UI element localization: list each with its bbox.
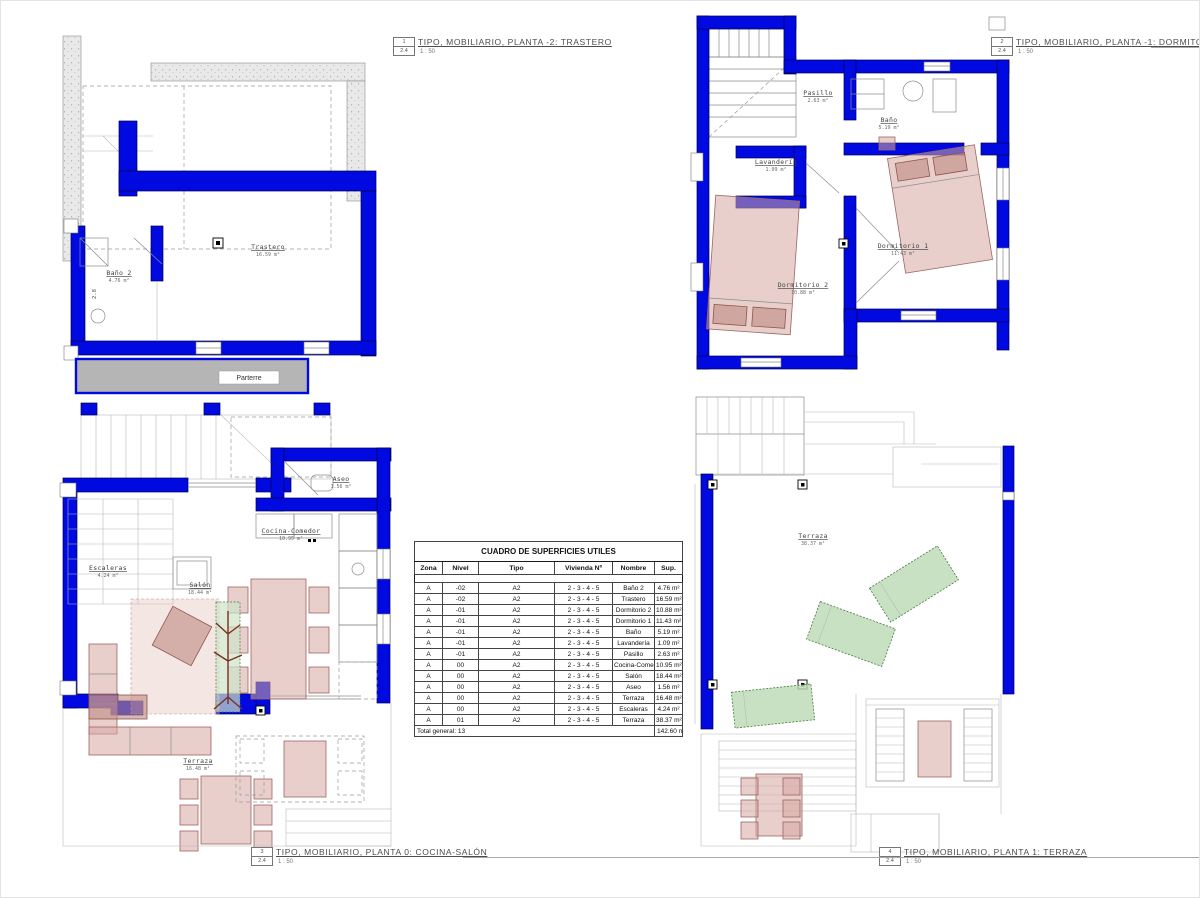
lounge-set [866,699,999,787]
glass-door [188,483,256,487]
table-cell: -01 [443,616,479,627]
table-cell: A2 [479,704,555,715]
table-cell: A [415,671,443,682]
marker-symbol [256,706,265,715]
table-row: A-02A22 - 3 - 4 - 5Trastero16.59 m² [415,594,683,605]
title-block-3: 3 2.4 TIPO, MOBILIARIO, PLANTA 0: COCINA… [251,847,487,866]
plant [214,602,242,712]
concrete-walls [63,36,365,261]
column-header: Tipo [479,562,555,575]
table-cell: Cocina-Comedor [613,660,655,671]
blue-walls [71,121,376,356]
table-cell: A [415,605,443,616]
table-cell: 00 [443,671,479,682]
table-cell: 11.43 m² [655,616,683,627]
table-cell: 2 - 3 - 4 - 5 [555,638,613,649]
sheet-number: 2.4 [252,857,272,865]
table-cell: 10.88 m² [655,605,683,616]
table-cell: A [415,715,443,726]
room-area: 1.09 m² [765,167,786,173]
table-cell: 2 - 3 - 4 - 5 [555,649,613,660]
room-area: 16.59 m² [256,252,280,258]
table-cell: A [415,616,443,627]
table-cell: 2 - 3 - 4 - 5 [555,660,613,671]
sun-loungers [731,546,958,728]
table-cell: A2 [479,605,555,616]
room-area: 18.44 m² [188,590,212,596]
table-cell: A [415,649,443,660]
room-label: Salón [189,581,210,589]
dimension-label: 2.8 [92,289,98,299]
column-header: Sup. [655,562,683,575]
table-cell: Trastero [613,594,655,605]
table-cell: A [415,660,443,671]
table-row: A-02A22 - 3 - 4 - 5Baño 24.76 m² [415,583,683,594]
table-cell: A2 [479,715,555,726]
table-cell: 38.37 m² [655,715,683,726]
table-cell: A2 [479,693,555,704]
sheet-number: 2.4 [394,47,414,55]
room-label: Baño [881,116,898,124]
table-cell: A [415,682,443,693]
drawing-number: 2 [992,38,1012,47]
table-row: A00A22 - 3 - 4 - 5Cocina-Comedor10.95 m² [415,660,683,671]
table-cell: -01 [443,649,479,660]
table-row: A-01A22 - 3 - 4 - 5Lavandería1.09 m² [415,638,683,649]
upper-room [893,447,1001,487]
table-cell: 2.63 m² [655,649,683,660]
table-cell: 16.48 m² [655,693,683,704]
table-body: A-02A22 - 3 - 4 - 5Baño 24.76 m²A-02A22 … [415,583,683,726]
table-cell: 2 - 3 - 4 - 5 [555,671,613,682]
table-cell: Escaleras [613,704,655,715]
table-cell: A2 [479,682,555,693]
room-area: 4.76 m² [108,278,129,284]
column-header: Zona [415,562,443,575]
marker-symbol [839,239,848,248]
table-cell: 2 - 3 - 4 - 5 [555,594,613,605]
dining-table [228,579,329,699]
sink-icon [352,563,364,575]
title-block-1: 1 2.4 TIPO, MOBILIARIO, PLANTA -2: TRAST… [393,37,612,56]
stairs [696,397,936,475]
table-row: A-01A22 - 3 - 4 - 5Dormitorio 210.88 m² [415,605,683,616]
drawing-scale: 1 : 50 [904,859,1087,865]
drawing-title: TIPO, MOBILIARIO, PLANTA 1: TERRAZA [904,847,1087,857]
room-label: Escaleras [89,564,127,572]
door-swing [806,163,839,193]
separator-line [1151,47,1200,48]
table-row: A-01A22 - 3 - 4 - 5Dormitorio 111.43 m² [415,616,683,627]
table-cell: -02 [443,583,479,594]
floor-plan-planta-minus-1: Pasillo 2.63 m² Baño 5.19 m² Lavandería … [681,13,1021,403]
table-title: CUADRO DE SUPERFICIES UTILES [415,542,683,562]
table-cell: 2 - 3 - 4 - 5 [555,715,613,726]
table-cell: Dormitorio 2 [613,605,655,616]
room-label: Pasillo [803,89,833,97]
table-cell: 01 [443,715,479,726]
drawing-number-box: 1 2.4 [393,37,415,56]
table-cell: -01 [443,605,479,616]
table-cell: A [415,594,443,605]
table-row: A00A22 - 3 - 4 - 5Terraza16.48 m² [415,693,683,704]
table-cell: Baño [613,627,655,638]
drawing-title: TIPO, MOBILIARIO, PLANTA -2: TRASTERO [418,37,612,47]
table-cell: Terraza [613,693,655,704]
parterre: Parterre [76,359,308,393]
table-cell: 16.59 m² [655,594,683,605]
table-cell: 2 - 3 - 4 - 5 [555,704,613,715]
room-label: Dormitorio 2 [778,281,829,289]
table-row: A01A22 - 3 - 4 - 5Terraza38.37 m² [415,715,683,726]
room-area: 5.19 m² [878,125,899,131]
table-cell: Terraza [613,715,655,726]
room-label: Trastero [251,243,285,251]
table-cell: Dormitorio 1 [613,616,655,627]
column-header: Nivel [443,562,479,575]
table-cell: A2 [479,671,555,682]
toilet-icon [91,309,105,323]
wall-post [64,219,78,233]
table-cell: A2 [479,627,555,638]
drawing-scale: 1 : 50 [276,859,487,865]
table-cell: Lavandería [613,638,655,649]
table-cell: Baño 2 [613,583,655,594]
table-cell: 10.95 m² [655,660,683,671]
drawing-title: TIPO, MOBILIARIO, PLANTA 0: COCINA-SALÓN [276,847,487,857]
architectural-sheet: 2.8 Baño 2 4.76 m² Trastero 16.59 m² Par… [0,0,1200,898]
table-cell: 4.76 m² [655,583,683,594]
table-cell: 00 [443,693,479,704]
sheet-number: 2.4 [992,47,1012,55]
upper-stairs [81,415,331,479]
room-area: 10.95 m² [279,536,303,542]
table-row: A00A22 - 3 - 4 - 5Salón18.44 m² [415,671,683,682]
table-cell: 4.24 m² [655,704,683,715]
table-cell: 2 - 3 - 4 - 5 [555,605,613,616]
room-label: Cocina-Comedor [262,527,321,535]
drawing-number: 3 [252,848,272,857]
total-value: 142.60 m² [655,726,683,737]
table-cell: A2 [479,594,555,605]
column-header: Nombre [613,562,655,575]
separator-line [463,857,1200,858]
table-cell: 18.44 m² [655,671,683,682]
table-cell: 5.19 m² [655,627,683,638]
spacer-row [415,575,683,583]
room-label: Aseo [333,475,350,483]
table-cell: A2 [479,583,555,594]
drawing-scale: 1 : 50 [418,49,612,55]
room-label: Terraza [798,532,828,540]
bathroom-fixtures [851,79,956,112]
table-cell: 00 [443,682,479,693]
table-cell: A2 [479,616,555,627]
column-header: Vivienda Nº [555,562,613,575]
room-area: 10.88 m² [791,290,815,296]
drawing-title: TIPO, MOBILIARIO, PLANTA -1: DORMITORIOS [1016,37,1200,47]
door-swing [856,261,899,303]
table-cell: 00 [443,704,479,715]
table-header-row: Zona Nivel Tipo Vivienda Nº Nombre Sup. [415,562,683,575]
room-area: 11.43 m² [891,251,915,257]
table-cell: 00 [443,660,479,671]
table-cell: 2 - 3 - 4 - 5 [555,616,613,627]
room-label: Lavandería [755,158,797,166]
drawing-number-box: 2 2.4 [991,37,1013,56]
drawing-number: 4 [880,848,900,857]
sheet-number: 2.4 [880,857,900,865]
shower-icon [933,79,956,112]
total-label: Total general: 13 [415,726,655,737]
table-cell: Aseo [613,682,655,693]
marker-symbols [708,480,807,689]
parterre-label: Parterre [236,375,261,382]
table-cell: Salón [613,671,655,682]
detail-marker [989,17,1005,30]
room-area: 4.24 m² [97,573,118,579]
trastero-symbol [213,238,223,248]
outdoor-dining [741,774,802,839]
table-cell: 2 - 3 - 4 - 5 [555,693,613,704]
table-row: A00A22 - 3 - 4 - 5Aseo1.56 m² [415,682,683,693]
table-cell: A [415,704,443,715]
floor-plan-planta-1: Terraza 38.37 m² [681,394,1021,861]
table-cell: A [415,693,443,704]
table-row: A-01A22 - 3 - 4 - 5Baño5.19 m² [415,627,683,638]
sink-icon [903,81,923,101]
room-label: Dormitorio 1 [878,242,929,250]
room-label: Baño 2 [106,269,131,277]
table-cell: A [415,583,443,594]
room-label: Terraza [183,757,213,765]
floor-plan-planta-minus-2: 2.8 Baño 2 4.76 m² Trastero 16.59 m² Par… [56,26,401,446]
table-cell: A2 [479,660,555,671]
stairs [709,29,796,137]
drawing-number-box: 3 2.4 [251,847,273,866]
room-area: 2.63 m² [807,98,828,104]
surface-areas-table: CUADRO DE SUPERFICIES UTILES Zona Nivel … [414,541,683,737]
table-cell: A2 [479,638,555,649]
blue-walls [701,446,1014,729]
table-cell: -02 [443,594,479,605]
drawing-number: 1 [394,38,414,47]
room-area: 1.56 m² [330,484,351,490]
table-total-row: Total general: 13 142.60 m² [415,726,683,737]
nightstand [879,137,895,150]
drawing-scale: 1 : 50 [1016,49,1200,55]
table-cell: Pasillo [613,649,655,660]
table-cell: -01 [443,638,479,649]
table-cell: A [415,638,443,649]
room-area: 16.48 m² [186,766,210,772]
table-cell: 2 - 3 - 4 - 5 [555,682,613,693]
table-cell: A2 [479,649,555,660]
table-row: A-01A22 - 3 - 4 - 5Pasillo2.63 m² [415,649,683,660]
table-cell: -01 [443,627,479,638]
table-cell: 1.09 m² [655,638,683,649]
floor-plan-planta-0: Aseo 1.56 m² Cocina-Comedor 10.95 m² Esc… [56,399,401,871]
table-cell: 2 - 3 - 4 - 5 [555,583,613,594]
table-cell: 1.56 m² [655,682,683,693]
table-row: A00A22 - 3 - 4 - 5Escaleras4.24 m² [415,704,683,715]
bed-dormitorio-2 [706,195,799,335]
table-cell: 2 - 3 - 4 - 5 [555,627,613,638]
table-cell: A [415,627,443,638]
room-area: 38.37 m² [801,541,825,547]
